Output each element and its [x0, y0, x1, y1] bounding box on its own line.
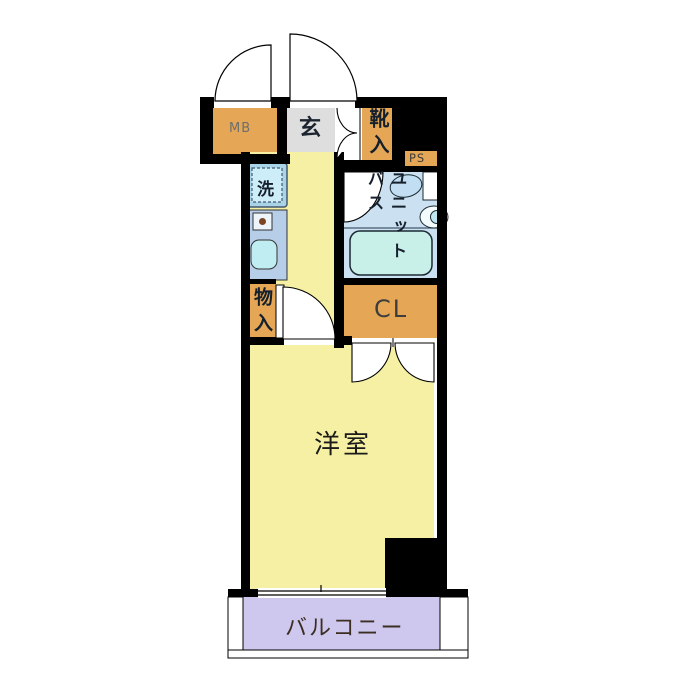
unit-bath-label: ユニットバス [357, 170, 409, 274]
window-opening [258, 588, 386, 598]
pipe-space-label: PS [409, 151, 425, 165]
burner-dot-icon [259, 218, 266, 225]
balcony-rail [228, 650, 468, 658]
wall-bottom-right-block [385, 538, 446, 597]
wall-left-main [241, 152, 250, 597]
meter-box-label: MB [229, 121, 251, 136]
kitchen-sink [251, 240, 277, 269]
balcony-side-wall-left [228, 597, 243, 651]
wall-storage-top [241, 279, 276, 284]
closet-label: CL [374, 295, 408, 323]
washer-label: 洗 [257, 175, 274, 200]
wall-left-upper [200, 97, 213, 164]
entrance-label: 玄 [299, 110, 321, 142]
floor-plan: MB 玄 靴入 PS 洗 ユニットバス 物入 CL 洋室 バルコニー [0, 0, 700, 700]
toilet-tank [423, 172, 439, 200]
entrance-door-swing-icon [290, 34, 357, 101]
balcony-label: バルコニー [285, 610, 405, 642]
wall-mb-right [277, 103, 287, 164]
shoe-cabinet-label: 靴入 [364, 108, 393, 160]
western-room-label: 洋室 [314, 424, 372, 461]
balcony-side-wall-right [440, 597, 468, 651]
wall-right [437, 160, 447, 597]
storage-label: 物入 [249, 287, 276, 339]
wall-bath-bottom [334, 278, 447, 285]
wall-closet-bottom-stub [344, 336, 352, 345]
floor-plan-drawing [0, 0, 700, 700]
wall-corridor-bath [334, 152, 344, 348]
mb-door-swing-icon [215, 45, 271, 101]
